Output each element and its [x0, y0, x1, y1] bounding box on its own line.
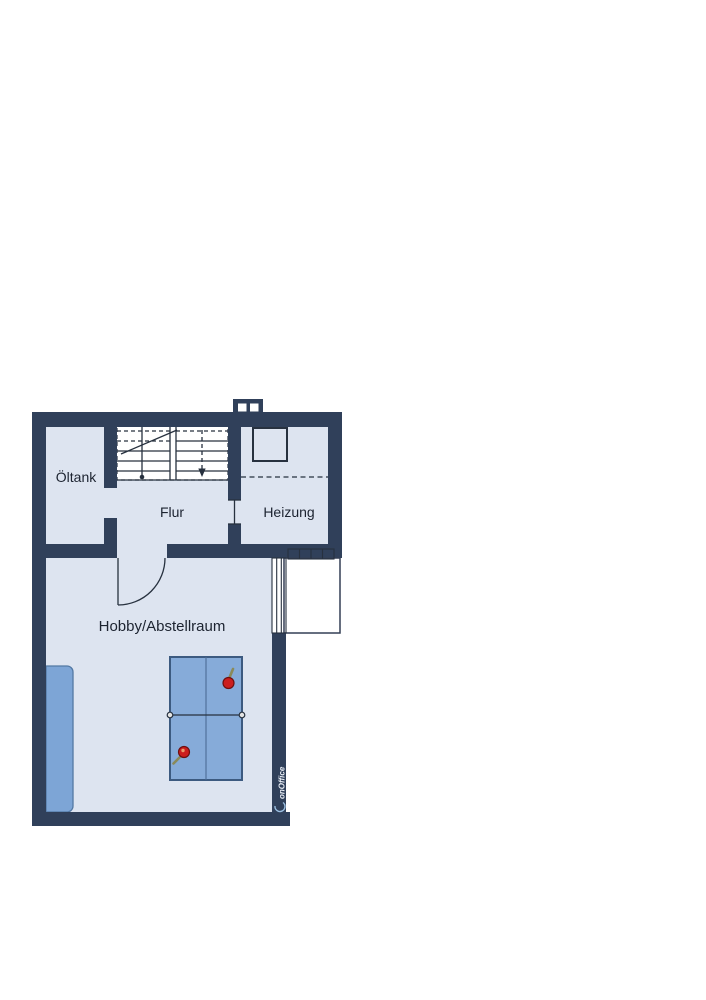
floor-plan-page: Öltank Flur Heizung Hobby/Abstellraum on… — [0, 0, 706, 1000]
room-label-hobby: Hobby/Abstellraum — [99, 618, 226, 635]
wall-oeltank-upper — [104, 427, 117, 488]
wall-mid-left — [32, 544, 117, 558]
wall-top — [32, 412, 342, 427]
wall-bottom — [32, 812, 290, 826]
wall-heizung-upper — [228, 427, 241, 500]
table-tennis-table-icon — [167, 657, 245, 780]
sideboard-icon — [46, 666, 73, 812]
chimney-flue-1 — [238, 404, 247, 412]
lightwell-box — [284, 558, 340, 633]
net-post-left — [167, 712, 173, 718]
chimney-icon — [233, 399, 263, 414]
room-label-flur: Flur — [160, 504, 184, 520]
watermark-text: onOffice — [278, 766, 287, 799]
wall-left — [32, 412, 46, 826]
chimney-flue-2 — [250, 404, 259, 412]
room-label-oeltank: Öltank — [56, 468, 97, 485]
room-label-heizung: Heizung — [263, 504, 314, 520]
wall-right-upper — [328, 412, 342, 558]
lightwell — [272, 549, 340, 633]
wall-mid-right — [167, 544, 342, 558]
floor-plan: Öltank Flur Heizung Hobby/Abstellraum on… — [0, 0, 706, 1000]
net-post-right — [239, 712, 245, 718]
